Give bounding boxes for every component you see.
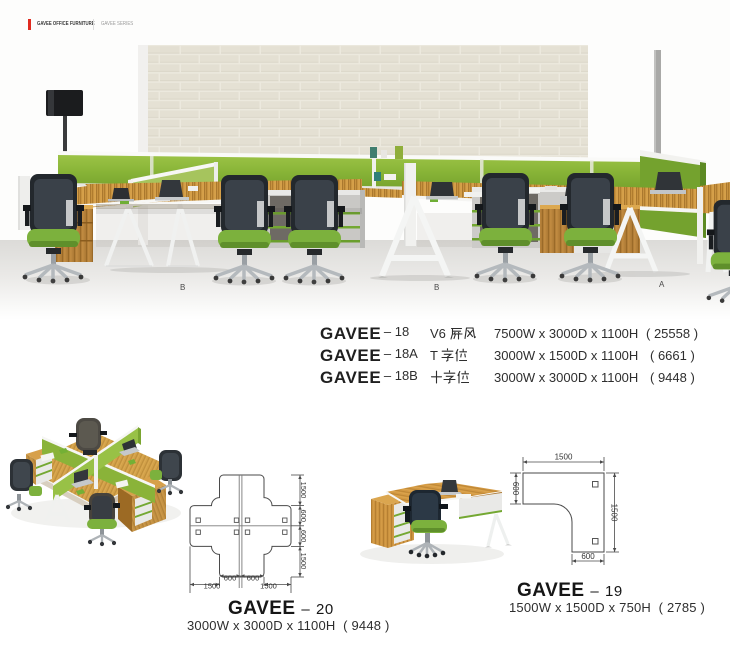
svg-text:1500: 1500 — [204, 582, 221, 591]
svg-text:600: 600 — [247, 574, 260, 583]
svg-text:1500: 1500 — [299, 482, 308, 499]
svg-text:1500: 1500 — [610, 504, 619, 522]
svg-text:1500: 1500 — [299, 553, 308, 570]
svg-text:B: B — [180, 283, 185, 292]
svg-text:1500: 1500 — [260, 582, 277, 591]
svg-text:1500: 1500 — [555, 453, 573, 462]
svg-text:600: 600 — [299, 530, 308, 543]
svg-text:B: B — [434, 283, 439, 292]
svg-text:600: 600 — [299, 509, 308, 522]
svg-text:A: A — [659, 280, 665, 289]
svg-text:600: 600 — [511, 482, 520, 496]
svg-text:600: 600 — [224, 574, 237, 583]
svg-text:600: 600 — [581, 552, 595, 561]
